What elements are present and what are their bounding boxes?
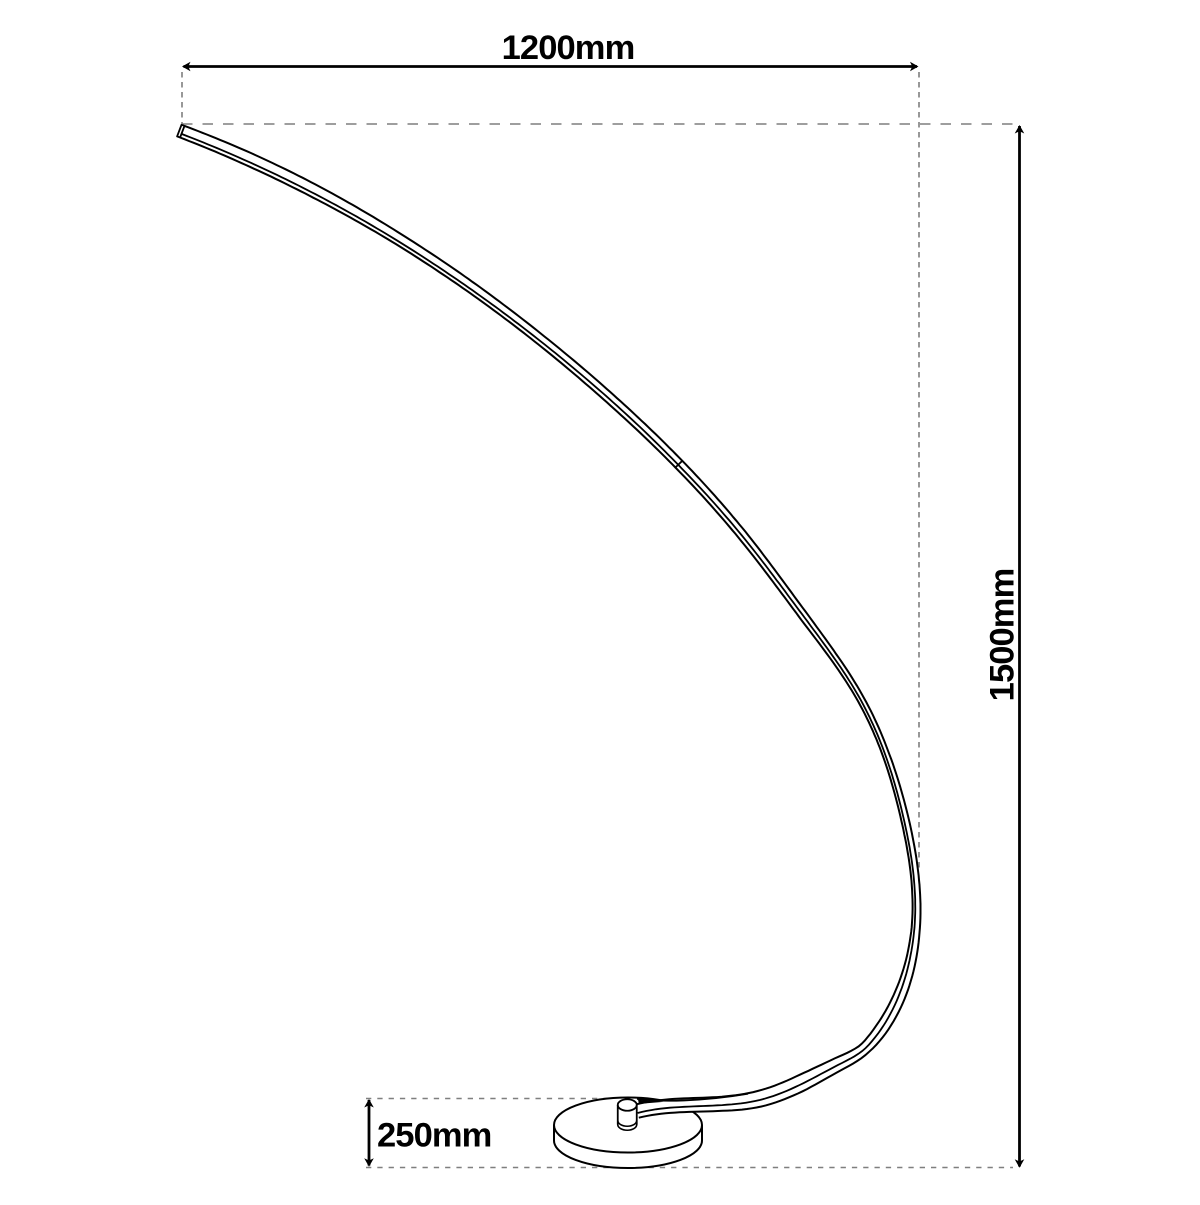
svg-text:250mm: 250mm bbox=[377, 1117, 491, 1155]
svg-text:1500mm: 1500mm bbox=[984, 569, 1022, 702]
svg-text:1200mm: 1200mm bbox=[502, 29, 635, 67]
